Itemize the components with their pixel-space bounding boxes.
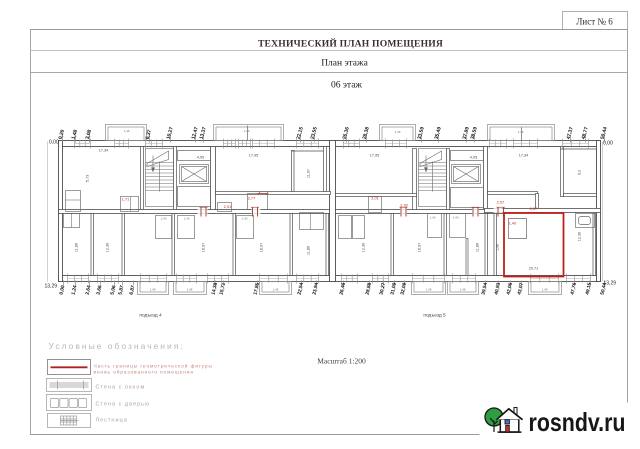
svg-text:1,48: 1,48 bbox=[124, 129, 130, 133]
svg-text:17,34: 17,34 bbox=[99, 149, 109, 153]
svg-text:10,27: 10,27 bbox=[166, 126, 175, 140]
svg-text:Стена с окном: Стена с окном bbox=[96, 385, 146, 391]
svg-text:1,48: 1,48 bbox=[542, 288, 548, 292]
svg-text:17,95: 17,95 bbox=[249, 154, 259, 158]
svg-text:12,30: 12,30 bbox=[578, 232, 582, 242]
svg-text:40,93: 40,93 bbox=[494, 282, 502, 295]
svg-text:49,15: 49,15 bbox=[585, 282, 593, 295]
svg-text:5,73: 5,73 bbox=[86, 175, 90, 182]
svg-text:12,30: 12,30 bbox=[106, 243, 110, 253]
svg-text:13,37: 13,37 bbox=[199, 126, 208, 140]
svg-text:26,46: 26,46 bbox=[339, 282, 347, 295]
svg-text:31,09: 31,09 bbox=[390, 282, 398, 295]
svg-text:4,05: 4,05 bbox=[197, 156, 204, 160]
svg-text:11,86: 11,86 bbox=[476, 243, 480, 252]
svg-text:4,05: 4,05 bbox=[470, 156, 477, 160]
svg-text:2,64: 2,64 bbox=[85, 285, 93, 296]
svg-text:13,29: 13,29 bbox=[45, 284, 58, 290]
svg-text:1,40: 1,40 bbox=[161, 217, 167, 221]
svg-text:38,59: 38,59 bbox=[470, 126, 479, 140]
svg-text:1,40: 1,40 bbox=[509, 222, 516, 226]
svg-text:22,15: 22,15 bbox=[296, 126, 305, 140]
svg-text:47,37: 47,37 bbox=[566, 126, 575, 140]
svg-text:26,36: 26,36 bbox=[342, 126, 351, 140]
svg-text:28,88: 28,88 bbox=[365, 282, 373, 295]
svg-text:9,2: 9,2 bbox=[578, 170, 582, 175]
svg-text:0,00: 0,00 bbox=[603, 141, 613, 147]
svg-text:28,38: 28,38 bbox=[362, 126, 371, 140]
svg-text:ТЕХНИЧЕСКИЙ ПЛАН ПОМЕЩЕНИЯ: ТЕХНИЧЕСКИЙ ПЛАН ПОМЕЩЕНИЯ bbox=[258, 38, 443, 50]
svg-text:17,95: 17,95 bbox=[370, 154, 380, 158]
svg-text:1,48: 1,48 bbox=[273, 288, 279, 292]
svg-text:1,40: 1,40 bbox=[242, 217, 248, 221]
svg-text:17,34: 17,34 bbox=[519, 154, 529, 158]
svg-text:14,38: 14,38 bbox=[211, 282, 219, 295]
svg-text:0,00: 0,00 bbox=[49, 140, 59, 146]
svg-text:6,87: 6,87 bbox=[129, 285, 137, 296]
svg-text:1,40: 1,40 bbox=[430, 216, 436, 220]
svg-text:Условные обозначения:: Условные обозначения: bbox=[49, 341, 185, 351]
svg-text:06 этаж: 06 этаж bbox=[331, 81, 362, 91]
svg-text:11,86: 11,86 bbox=[75, 243, 79, 252]
svg-text:6,37: 6,37 bbox=[145, 129, 154, 140]
svg-text:2,77: 2,77 bbox=[248, 197, 255, 201]
svg-text:0,00: 0,00 bbox=[59, 285, 67, 296]
svg-text:3,66: 3,66 bbox=[96, 285, 104, 296]
svg-text:2,30: 2,30 bbox=[400, 204, 407, 208]
svg-text:1,48: 1,48 bbox=[460, 288, 466, 292]
svg-text:16,97: 16,97 bbox=[260, 243, 264, 253]
svg-text:23,94: 23,94 bbox=[312, 282, 320, 295]
svg-text:подъезд 4: подъезд 4 bbox=[139, 313, 162, 319]
svg-text:33,59: 33,59 bbox=[417, 126, 426, 140]
svg-text:Масштаб 1:200: Масштаб 1:200 bbox=[317, 357, 366, 366]
svg-text:16,97: 16,97 bbox=[202, 243, 206, 253]
svg-text:1,40: 1,40 bbox=[453, 216, 459, 220]
svg-text:1,48: 1,48 bbox=[244, 129, 250, 133]
svg-text:15,71: 15,71 bbox=[219, 282, 227, 295]
svg-text:13,29: 13,29 bbox=[604, 281, 617, 287]
svg-text:39,54: 39,54 bbox=[481, 282, 489, 295]
svg-text:35,49: 35,49 bbox=[434, 126, 443, 140]
svg-text:rosndv.ru: rosndv.ru bbox=[529, 407, 626, 437]
svg-text:50,44: 50,44 bbox=[600, 126, 609, 140]
svg-text:3,08: 3,08 bbox=[85, 129, 94, 140]
svg-text:Стена с дверью: Стена с дверью bbox=[96, 402, 151, 408]
svg-text:подъезд 5: подъезд 5 bbox=[423, 313, 446, 319]
svg-text:23,55: 23,55 bbox=[310, 126, 319, 140]
svg-text:20,71: 20,71 bbox=[529, 267, 539, 271]
svg-text:1,98: 1,98 bbox=[496, 244, 500, 251]
svg-text:1,48: 1,48 bbox=[187, 288, 193, 292]
svg-text:2,01: 2,01 bbox=[371, 197, 378, 201]
svg-text:1,71: 1,71 bbox=[122, 198, 129, 202]
svg-text:2,57: 2,57 bbox=[530, 207, 537, 211]
svg-text:Лист № 6: Лист № 6 bbox=[576, 17, 613, 27]
svg-text:1,48: 1,48 bbox=[426, 288, 432, 292]
svg-text:1,40: 1,40 bbox=[184, 217, 190, 221]
svg-text:Лестница: Лестница bbox=[96, 418, 128, 424]
svg-text:1,48: 1,48 bbox=[150, 288, 156, 292]
svg-text:12,30: 12,30 bbox=[362, 243, 366, 253]
svg-text:1,48: 1,48 bbox=[71, 129, 80, 140]
svg-text:1,48: 1,48 bbox=[395, 130, 401, 134]
svg-text:22,54: 22,54 bbox=[297, 282, 305, 295]
svg-text:вновь образованного помещения: вновь образованного помещения bbox=[94, 370, 194, 376]
svg-text:1,48: 1,48 bbox=[518, 130, 524, 134]
svg-text:32,09: 32,09 bbox=[400, 282, 408, 295]
svg-text:2,57: 2,57 bbox=[497, 201, 504, 205]
svg-text:16,97: 16,97 bbox=[418, 243, 422, 253]
svg-text:План этажа: План этажа bbox=[321, 59, 368, 69]
svg-text:11,97: 11,97 bbox=[307, 169, 311, 178]
svg-text:1,24: 1,24 bbox=[71, 285, 79, 296]
svg-text:30,27: 30,27 bbox=[379, 282, 387, 295]
svg-text:42,06: 42,06 bbox=[506, 282, 514, 295]
svg-text:47,76: 47,76 bbox=[570, 282, 578, 295]
svg-text:Часть границы геометрической ф: Часть границы геометрической фигуры bbox=[94, 363, 213, 370]
svg-text:5,87: 5,87 bbox=[118, 285, 126, 296]
svg-text:0,20: 0,20 bbox=[58, 129, 67, 140]
svg-text:48,77: 48,77 bbox=[581, 126, 590, 140]
svg-text:11,86: 11,86 bbox=[307, 246, 311, 255]
svg-text:2,01: 2,01 bbox=[224, 205, 231, 209]
svg-text:43,07: 43,07 bbox=[517, 282, 525, 295]
svg-text:5,06: 5,06 bbox=[110, 285, 118, 296]
